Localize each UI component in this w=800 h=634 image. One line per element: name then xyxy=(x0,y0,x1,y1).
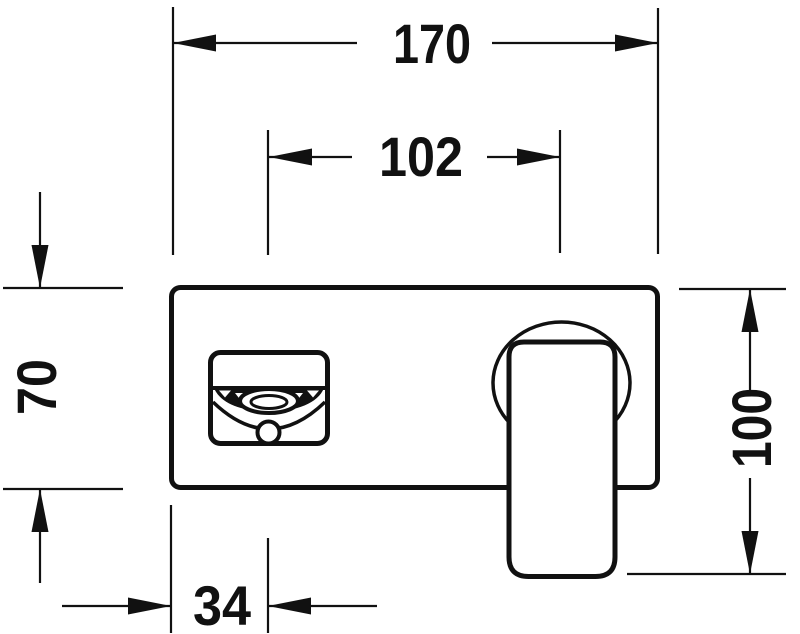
technical-drawing: 170 102 70 xyxy=(0,0,800,634)
arrowhead-left xyxy=(268,598,311,615)
arrowhead-up xyxy=(32,489,49,532)
handle-assembly xyxy=(493,322,630,577)
dim-label-spout-to-handle: 102 xyxy=(379,125,463,188)
arrowhead-left xyxy=(269,149,312,166)
arrowhead-right xyxy=(128,598,171,615)
dim-label-plate-height: 70 xyxy=(5,359,68,415)
dim-edge-to-spout: 34 xyxy=(62,505,377,634)
dim-label-edge-to-spout: 34 xyxy=(193,574,251,634)
aerator-cap-circle xyxy=(258,422,280,444)
arrowhead-down xyxy=(32,245,49,288)
fixture xyxy=(172,288,658,577)
arrowhead-left xyxy=(173,35,216,52)
dim-plate-height: 70 xyxy=(3,192,123,583)
aerator-inner-ring xyxy=(251,396,287,409)
dim-label-overall-width: 170 xyxy=(393,12,471,75)
spout-front-view xyxy=(211,353,328,444)
arrowhead-down xyxy=(742,531,759,574)
dim-spout-to-handle: 102 xyxy=(268,125,560,255)
dim-label-overall-height: 100 xyxy=(720,388,783,468)
lever-handle xyxy=(509,342,615,577)
arrowhead-right xyxy=(517,149,560,166)
drawing-canvas: 170 102 70 xyxy=(0,0,800,634)
arrowhead-right xyxy=(615,35,658,52)
arrowhead-up xyxy=(742,289,759,332)
